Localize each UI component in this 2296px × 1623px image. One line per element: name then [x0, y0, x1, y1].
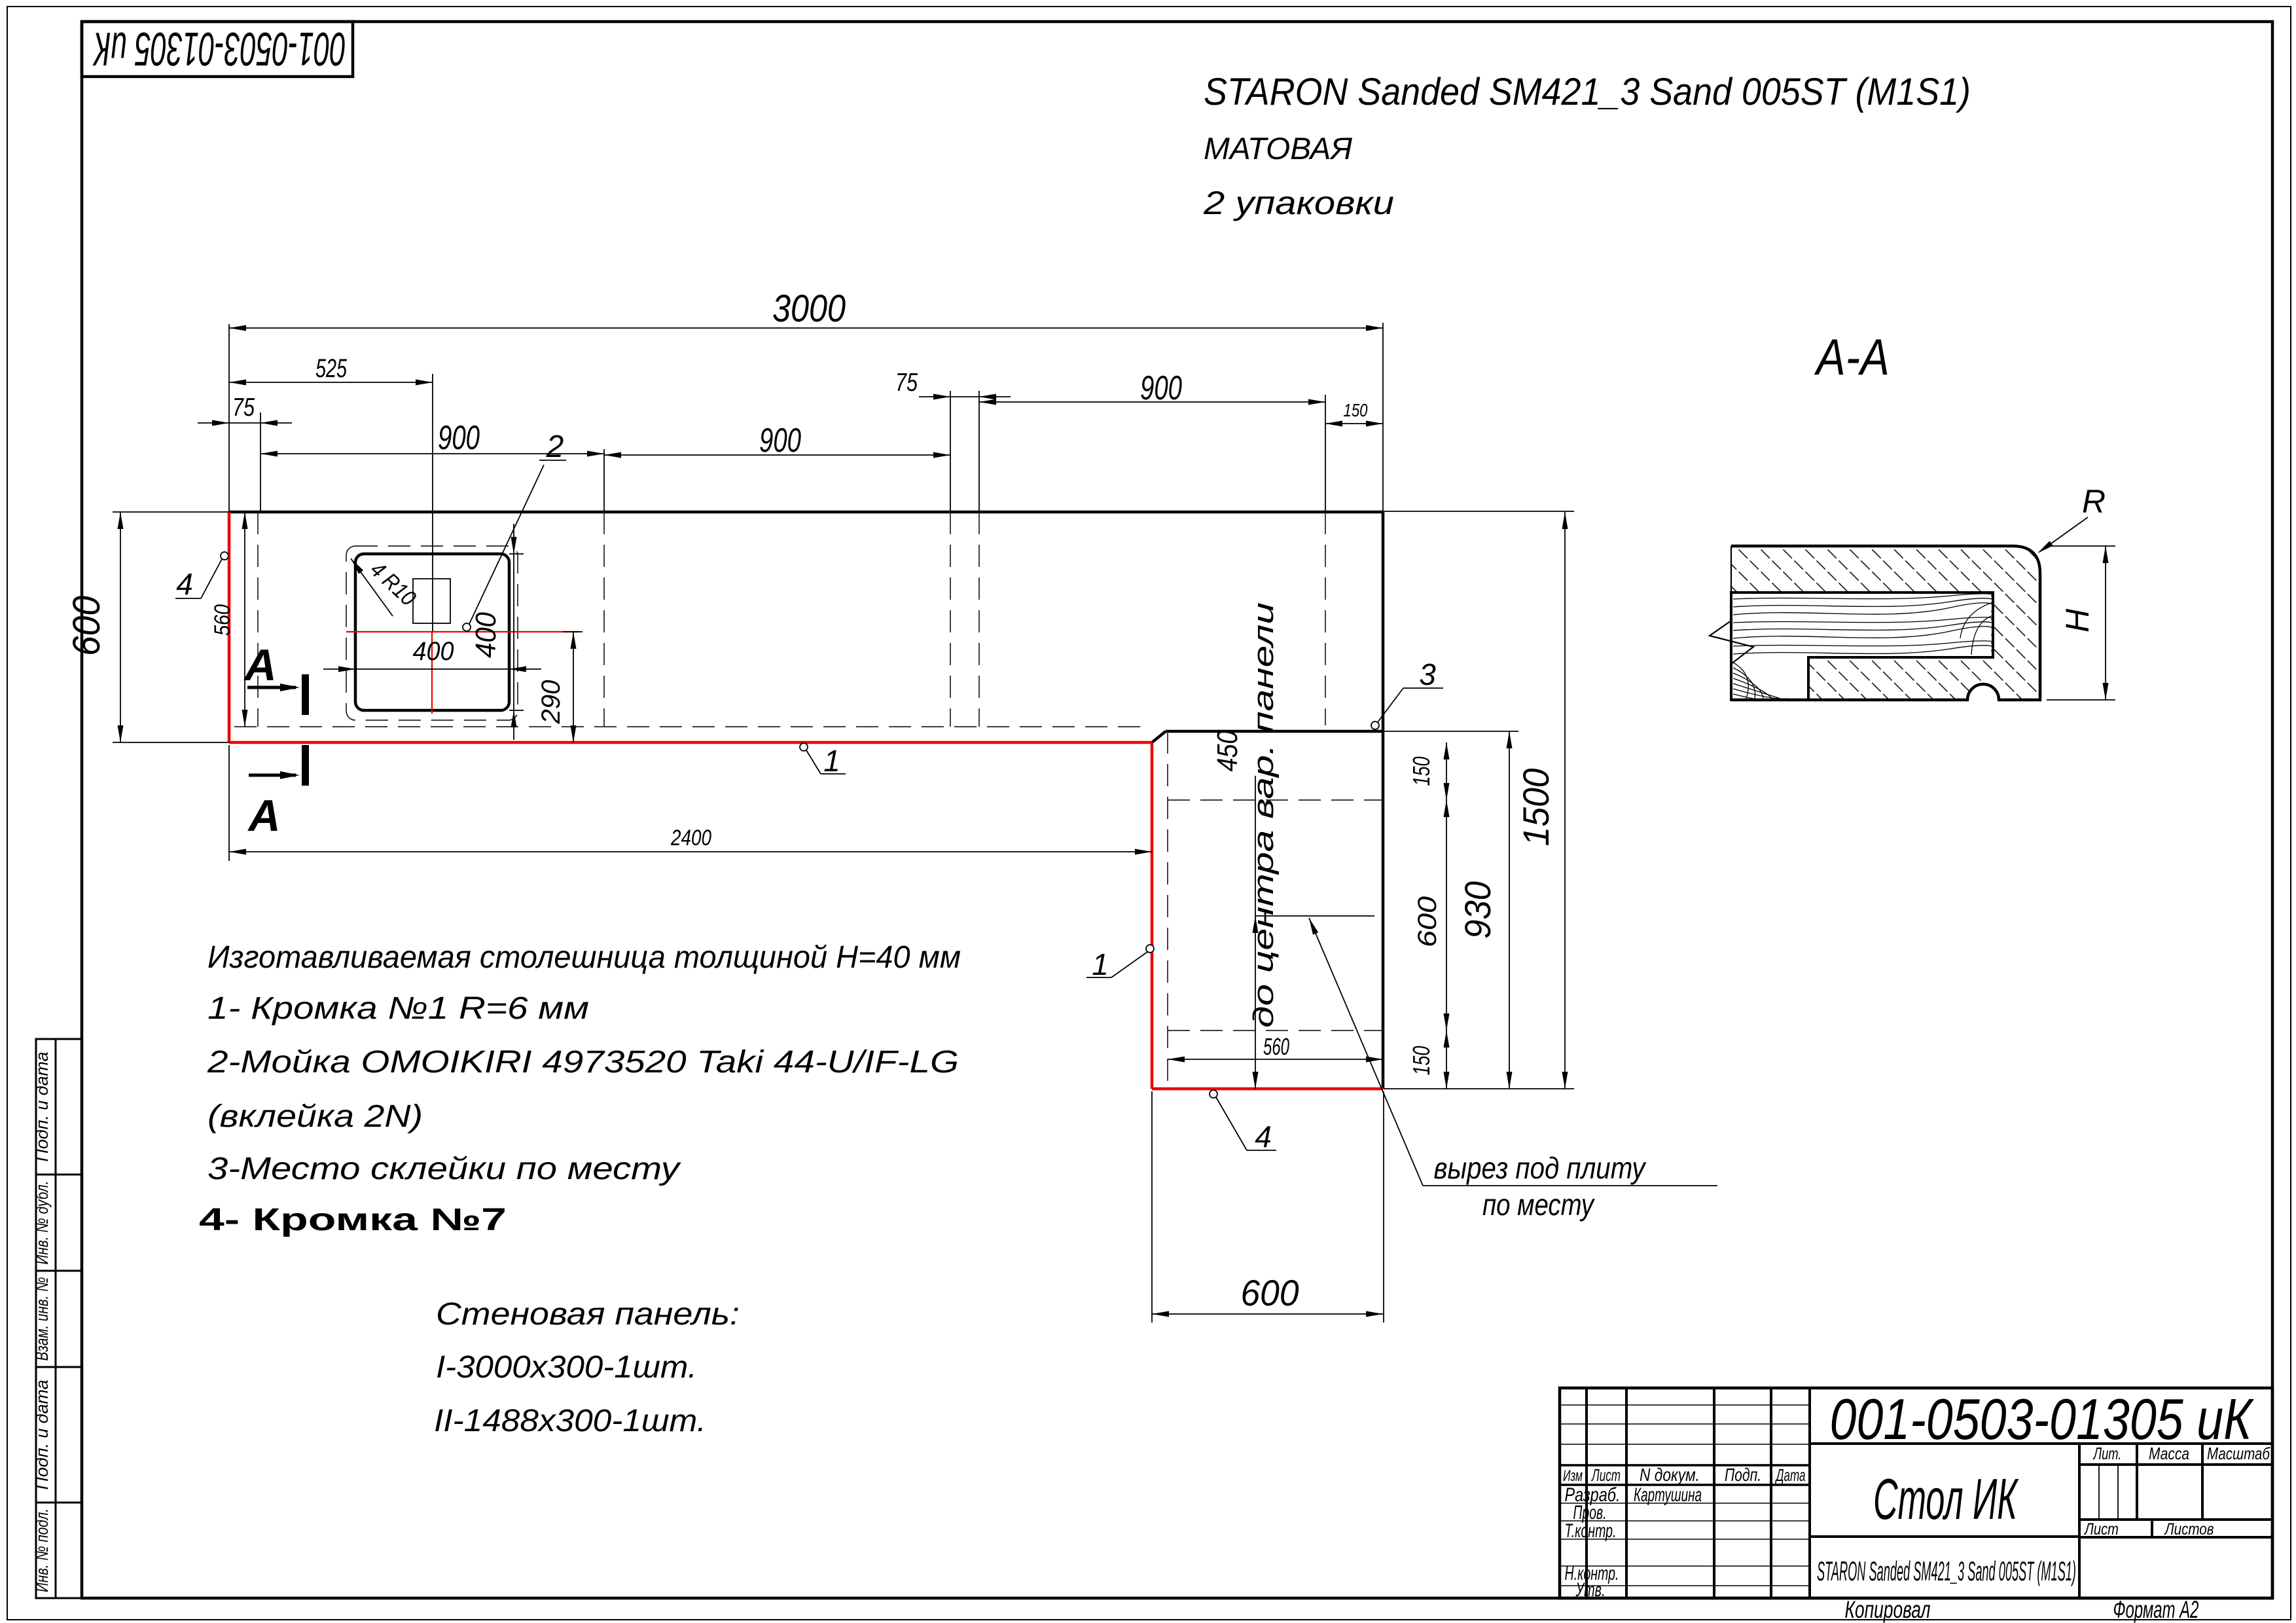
svg-text:4: 4 [176, 567, 193, 601]
svg-text:930: 930 [1457, 881, 1498, 939]
svg-text:3000: 3000 [772, 287, 846, 330]
svg-text:Инв. № дубл.: Инв. № дубл. [32, 1181, 52, 1265]
svg-text:по месту: по месту [1482, 1188, 1595, 1222]
svg-text:1: 1 [1092, 947, 1109, 981]
svg-text:Изм: Изм [1563, 1467, 1583, 1485]
svg-text:Картушина: Картушина [1634, 1484, 1702, 1506]
svg-text:Стол ИК: Стол ИК [1873, 1467, 2018, 1531]
svg-text:150: 150 [1408, 1046, 1435, 1076]
svg-text:2 упаковки: 2 упаковки [1203, 185, 1394, 221]
svg-text:900: 900 [759, 422, 801, 460]
svg-text:560: 560 [1263, 1033, 1289, 1060]
svg-text:1- Кромка №1 R=6 мм: 1- Кромка №1 R=6 мм [207, 991, 589, 1026]
svg-text:Дата: Дата [1775, 1465, 1806, 1485]
svg-text:001-0503-01305 иК: 001-0503-01305 иК [1830, 1387, 2254, 1451]
svg-text:R: R [2082, 483, 2106, 520]
svg-text:Утв.: Утв. [1575, 1579, 1605, 1601]
svg-text:МАТОВАЯ: МАТОВАЯ [1204, 131, 1353, 166]
svg-text:900: 900 [438, 419, 480, 457]
svg-text:525: 525 [315, 354, 348, 383]
svg-text:150: 150 [1344, 400, 1368, 420]
svg-text:A: A [243, 640, 276, 690]
svg-text:450: 450 [1211, 730, 1244, 771]
svg-text:Формат А2: Формат А2 [2113, 1596, 2199, 1623]
svg-text:N докум.: N докум. [1640, 1465, 1700, 1485]
svg-text:3-Место склейки по месту: 3-Место склейки по месту [207, 1152, 682, 1186]
svg-text:Листов: Листов [2164, 1520, 2214, 1539]
svg-text:H: H [2059, 608, 2096, 632]
svg-text:290: 290 [537, 680, 565, 725]
svg-text:STARON Sanded SM421_3 Sand 005: STARON Sanded SM421_3 Sand 005ST (M1S1) [1204, 71, 1971, 113]
svg-text:Подп. и дата: Подп. и дата [32, 1052, 52, 1162]
svg-text:560: 560 [210, 604, 235, 636]
svg-text:2400: 2400 [670, 826, 711, 850]
svg-text:Взам. инв. №: Взам. инв. № [32, 1277, 52, 1361]
svg-text:(вклейка 2N): (вклейка 2N) [207, 1099, 423, 1134]
svg-text:II-1488х300-1шт.: II-1488х300-1шт. [434, 1404, 706, 1438]
svg-text:1500: 1500 [1515, 769, 1556, 847]
svg-text:A: A [247, 791, 280, 841]
svg-text:600: 600 [65, 596, 108, 656]
svg-text:Подп. и дата: Подп. и дата [32, 1380, 52, 1490]
svg-text:Стеновая панель:: Стеновая панель: [436, 1297, 740, 1332]
svg-text:600: 600 [1241, 1272, 1299, 1313]
svg-text:400: 400 [413, 637, 454, 666]
svg-text:400: 400 [470, 612, 502, 658]
svg-text:2: 2 [546, 429, 564, 464]
svg-text:Т.контр.: Т.контр. [1565, 1520, 1617, 1542]
svg-text:Подп.: Подп. [1725, 1465, 1761, 1485]
svg-text:Лист: Лист [1591, 1465, 1621, 1485]
svg-text:001-0503-01305 иК: 001-0503-01305 иК [92, 22, 346, 75]
svg-text:A-A: A-A [1814, 328, 1890, 386]
svg-text:2-Мойка OMOIKIRI 4973520 Ta: 2-Мойка OMOIKIRI 4973520 Taki 44-U/IF-LG [207, 1045, 959, 1080]
svg-text:до центра вар. панели: до центра вар. панели [1247, 602, 1280, 1028]
svg-text:1: 1 [823, 744, 840, 778]
svg-text:4: 4 [1255, 1120, 1272, 1154]
svg-text:Изготавливаемая столешница тол: Изготавливаемая столешница толщиной Н=40… [207, 940, 961, 975]
svg-text:600: 600 [1413, 896, 1442, 947]
svg-text:3: 3 [1419, 657, 1436, 691]
svg-text:Копировал: Копировал [1845, 1596, 1931, 1623]
svg-text:4- Кромка №7: 4- Кромка №7 [199, 1203, 507, 1237]
svg-text:Лист: Лист [2083, 1520, 2119, 1539]
svg-text:900: 900 [1140, 369, 1182, 407]
svg-text:I-3000х300-1шт.: I-3000х300-1шт. [436, 1350, 697, 1385]
svg-text:Инв. № подл.: Инв. № подл. [32, 1508, 52, 1592]
svg-text:вырез под плиту: вырез под плиту [1434, 1151, 1647, 1185]
svg-text:Масштаб: Масштаб [2207, 1444, 2270, 1463]
svg-text:Масса: Масса [2149, 1444, 2189, 1463]
svg-text:Лит.: Лит. [2092, 1444, 2121, 1463]
svg-text:STARON Sanded SM421_3 Sand 005: STARON Sanded SM421_3 Sand 005ST (M1S1) [1817, 1556, 2076, 1586]
svg-text:150: 150 [1408, 757, 1435, 786]
svg-text:75: 75 [895, 369, 918, 397]
svg-text:75: 75 [232, 393, 255, 422]
